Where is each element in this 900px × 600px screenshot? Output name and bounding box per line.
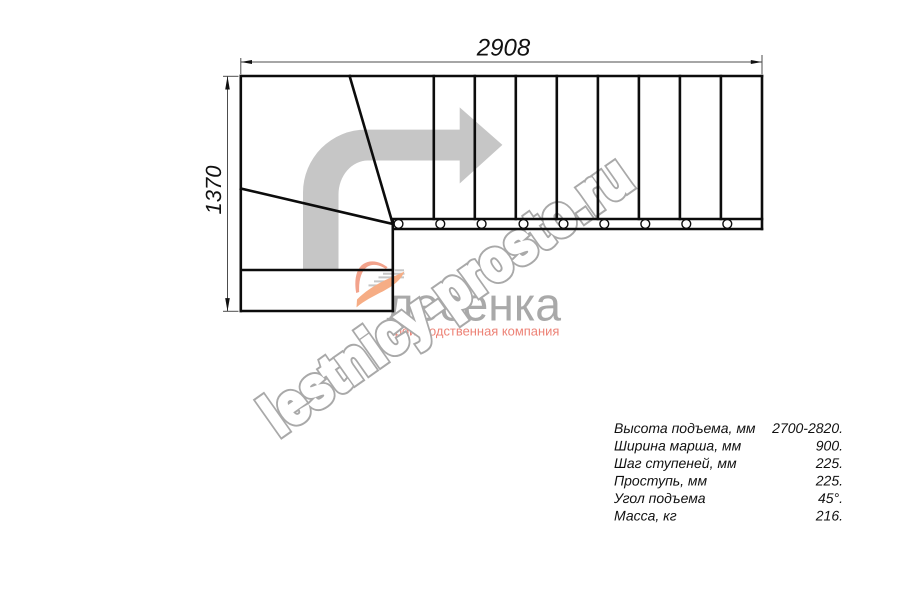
svg-text:900.: 900. xyxy=(816,438,843,454)
svg-text:Проступь, мм: Проступь, мм xyxy=(614,473,708,489)
svg-text:216.: 216. xyxy=(815,508,843,524)
svg-text:225.: 225. xyxy=(815,473,843,489)
svg-text:45°.: 45°. xyxy=(818,490,843,506)
svg-text:2700-2820.: 2700-2820. xyxy=(771,420,843,436)
svg-text:Ширина марша, мм: Ширина марша, мм xyxy=(614,438,742,454)
svg-text:2908: 2908 xyxy=(476,35,531,62)
svg-text:1370: 1370 xyxy=(201,165,226,215)
svg-text:Шаг ступеней, мм: Шаг ступеней, мм xyxy=(614,455,737,471)
svg-text:225.: 225. xyxy=(815,455,843,471)
svg-text:Высота подъема, мм: Высота подъема, мм xyxy=(614,420,756,436)
svg-text:Масса, кг: Масса, кг xyxy=(614,508,677,524)
svg-text:Угол подъема: Угол подъема xyxy=(613,490,706,506)
